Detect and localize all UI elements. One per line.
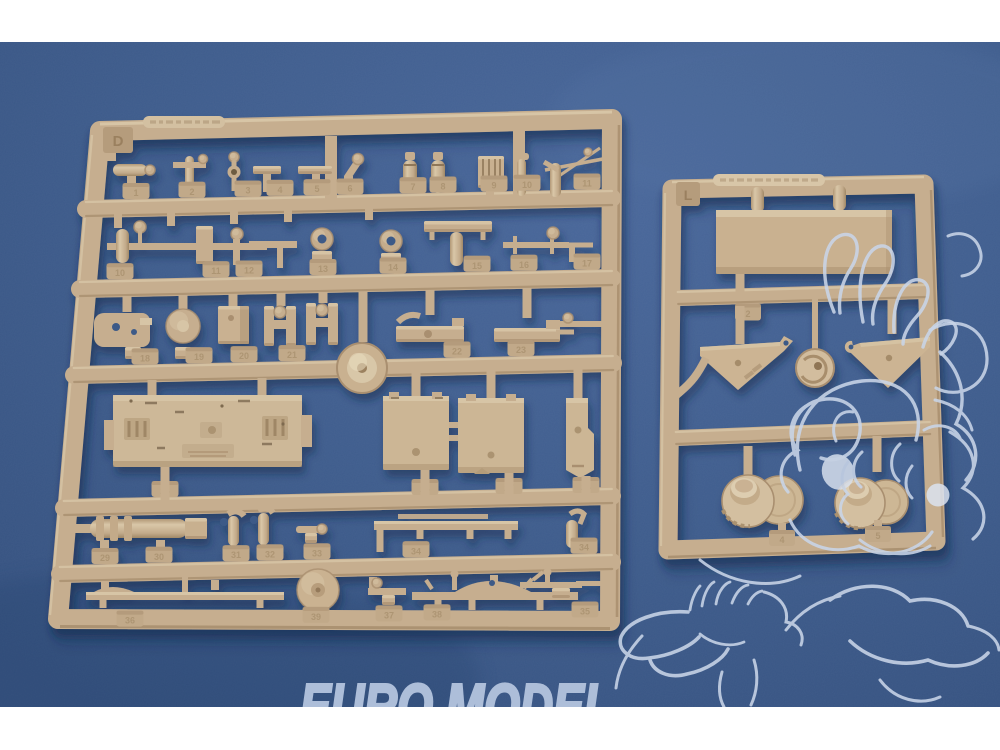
svg-text:30: 30 xyxy=(154,552,164,562)
svg-text:36: 36 xyxy=(125,616,135,626)
svg-text:11: 11 xyxy=(582,179,592,189)
svg-text:4: 4 xyxy=(779,535,784,545)
svg-text:L: L xyxy=(684,187,693,203)
svg-text:33: 33 xyxy=(312,548,322,558)
svg-text:17: 17 xyxy=(582,259,592,269)
svg-text:18: 18 xyxy=(140,353,150,363)
svg-text:5: 5 xyxy=(314,184,319,194)
svg-text:35: 35 xyxy=(580,607,590,617)
svg-text:38: 38 xyxy=(432,609,442,619)
svg-text:34: 34 xyxy=(579,543,589,553)
svg-text:34: 34 xyxy=(411,546,421,556)
svg-text:22: 22 xyxy=(452,347,462,357)
svg-text:16: 16 xyxy=(519,260,529,270)
svg-text:2: 2 xyxy=(189,187,194,197)
svg-text:2: 2 xyxy=(745,309,750,319)
svg-text:31: 31 xyxy=(231,550,241,560)
svg-text:D: D xyxy=(113,133,124,150)
svg-text:12: 12 xyxy=(244,266,254,276)
svg-text:32: 32 xyxy=(265,549,275,559)
svg-text:10: 10 xyxy=(115,268,125,278)
svg-text:19: 19 xyxy=(194,352,204,362)
svg-text:7: 7 xyxy=(410,182,415,192)
svg-text:13: 13 xyxy=(318,264,328,274)
svg-text:8: 8 xyxy=(440,182,445,192)
svg-text:23: 23 xyxy=(516,345,526,355)
svg-text:11: 11 xyxy=(211,266,221,276)
svg-text:37: 37 xyxy=(384,610,394,620)
svg-text:39: 39 xyxy=(311,612,321,622)
svg-text:10: 10 xyxy=(522,180,532,190)
svg-text:20: 20 xyxy=(239,351,249,361)
svg-text:5: 5 xyxy=(875,531,880,541)
svg-text:6: 6 xyxy=(347,184,352,194)
svg-text:29: 29 xyxy=(100,553,110,563)
svg-text:3: 3 xyxy=(245,186,250,196)
svg-text:4: 4 xyxy=(277,185,282,195)
svg-text:21: 21 xyxy=(287,350,297,360)
svg-text:15: 15 xyxy=(472,261,482,271)
svg-text:9: 9 xyxy=(491,181,496,191)
svg-text:1: 1 xyxy=(133,188,138,198)
svg-text:14: 14 xyxy=(388,263,398,273)
